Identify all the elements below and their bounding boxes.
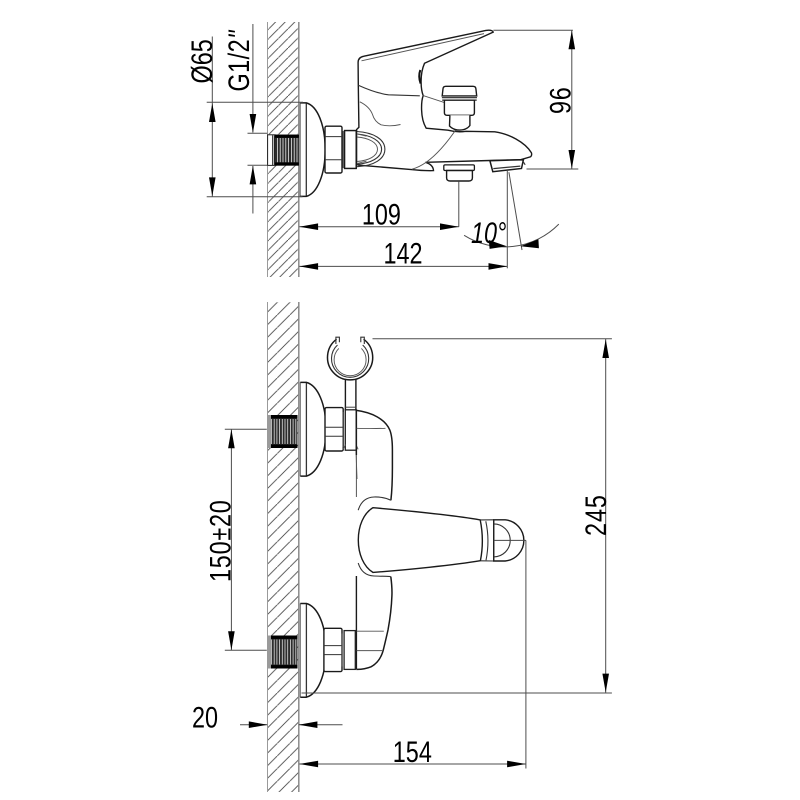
svg-text:96: 96 xyxy=(544,86,577,114)
svg-text:G1/2": G1/2" xyxy=(222,29,255,91)
svg-text:10°: 10° xyxy=(471,216,507,249)
svg-text:150±20: 150±20 xyxy=(204,499,237,582)
svg-text:245: 245 xyxy=(579,494,612,536)
svg-text:109: 109 xyxy=(362,198,401,231)
svg-text:154: 154 xyxy=(393,735,432,768)
svg-text:20: 20 xyxy=(192,701,218,734)
svg-text:142: 142 xyxy=(384,237,423,270)
svg-text:Ø65: Ø65 xyxy=(185,39,218,83)
